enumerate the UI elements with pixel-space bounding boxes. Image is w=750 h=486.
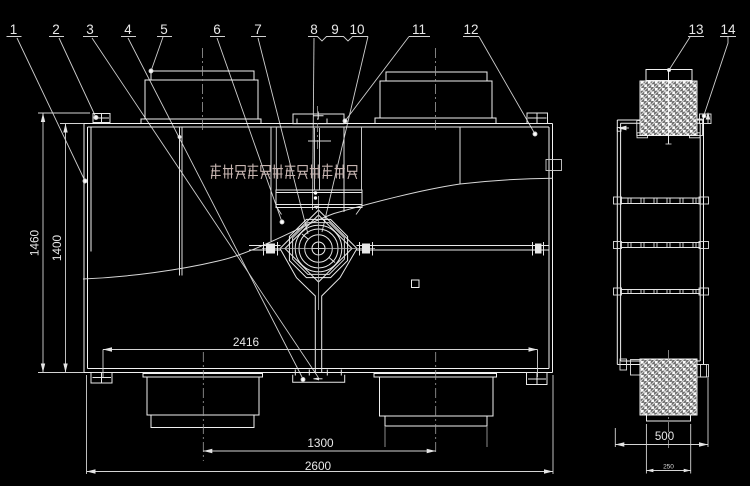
svg-text:14: 14 bbox=[720, 22, 736, 37]
svg-text:12: 12 bbox=[463, 22, 478, 37]
svg-text:2600: 2600 bbox=[305, 459, 332, 473]
svg-text:1400: 1400 bbox=[50, 234, 64, 261]
svg-text:2416: 2416 bbox=[233, 335, 260, 349]
svg-text:7: 7 bbox=[254, 22, 262, 37]
svg-text:250: 250 bbox=[663, 464, 674, 471]
svg-text:1460: 1460 bbox=[28, 229, 42, 256]
svg-text:8: 8 bbox=[310, 22, 318, 37]
svg-text:500: 500 bbox=[655, 431, 674, 443]
svg-text:13: 13 bbox=[688, 22, 703, 37]
svg-text:1: 1 bbox=[10, 22, 18, 37]
svg-text:10: 10 bbox=[349, 22, 364, 37]
svg-text:4: 4 bbox=[124, 22, 132, 37]
svg-text:3: 3 bbox=[86, 22, 94, 37]
svg-text:9: 9 bbox=[331, 22, 339, 37]
svg-text:6: 6 bbox=[213, 22, 221, 37]
svg-text:5: 5 bbox=[160, 22, 168, 37]
svg-text:11: 11 bbox=[412, 22, 426, 37]
svg-text:2: 2 bbox=[52, 22, 60, 37]
svg-text:1300: 1300 bbox=[307, 436, 334, 450]
